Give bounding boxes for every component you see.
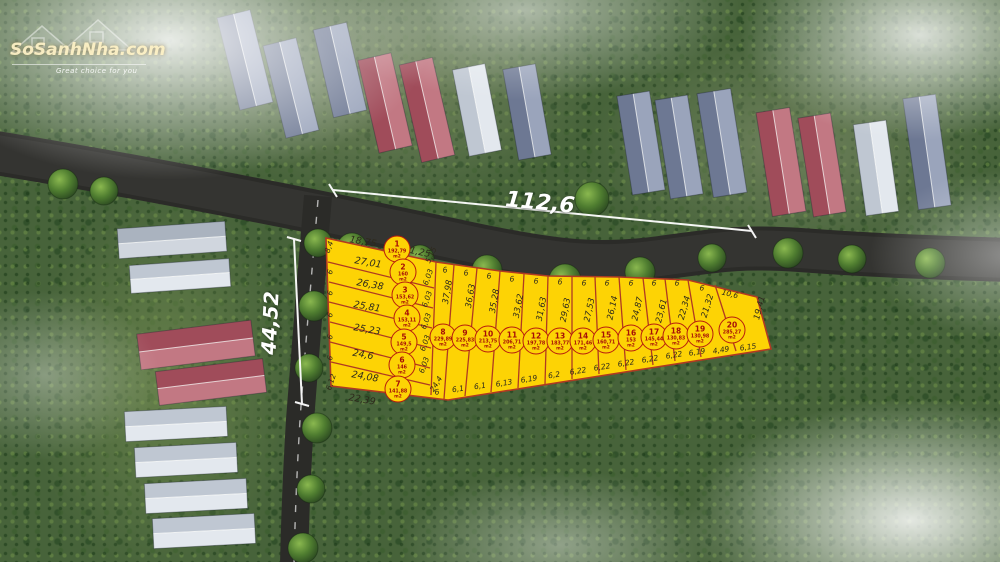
tree-icon <box>288 533 318 562</box>
house-roof <box>452 64 501 157</box>
house-roof <box>129 259 231 294</box>
house-roof <box>853 120 898 216</box>
tree-icon <box>838 245 866 273</box>
house-roof <box>152 513 255 548</box>
house-roof <box>144 478 247 513</box>
house-roof <box>124 406 227 441</box>
house-roof <box>903 94 951 210</box>
brand-tagline: Great choice for you <box>56 67 137 75</box>
house-roof <box>798 113 846 217</box>
tree-icon <box>299 291 329 321</box>
tree-icon <box>915 248 945 278</box>
brand-divider <box>12 64 146 65</box>
tree-icon <box>48 169 78 199</box>
tree-icon <box>90 177 118 205</box>
house-roof <box>313 22 366 117</box>
house-roof <box>217 10 273 110</box>
house-roof <box>117 221 227 258</box>
scene-graphics <box>0 0 1000 562</box>
site-plan-aerial-view: 112,6 44,52 18,7527,0126,3825,8125,2324,… <box>0 0 1000 562</box>
tree-icon <box>575 182 609 216</box>
house-roof <box>503 64 551 160</box>
brand-name: SoSanhNha.com <box>10 40 166 60</box>
house-roof <box>697 88 747 197</box>
brand-watermark: SoSanhNha.com Great choice for you <box>8 4 168 84</box>
house-roof <box>263 38 319 138</box>
house-roof <box>134 442 237 477</box>
tree-icon <box>297 475 325 503</box>
tree-icon <box>302 413 332 443</box>
tree-icon <box>698 244 726 272</box>
tree-icon <box>773 238 803 268</box>
